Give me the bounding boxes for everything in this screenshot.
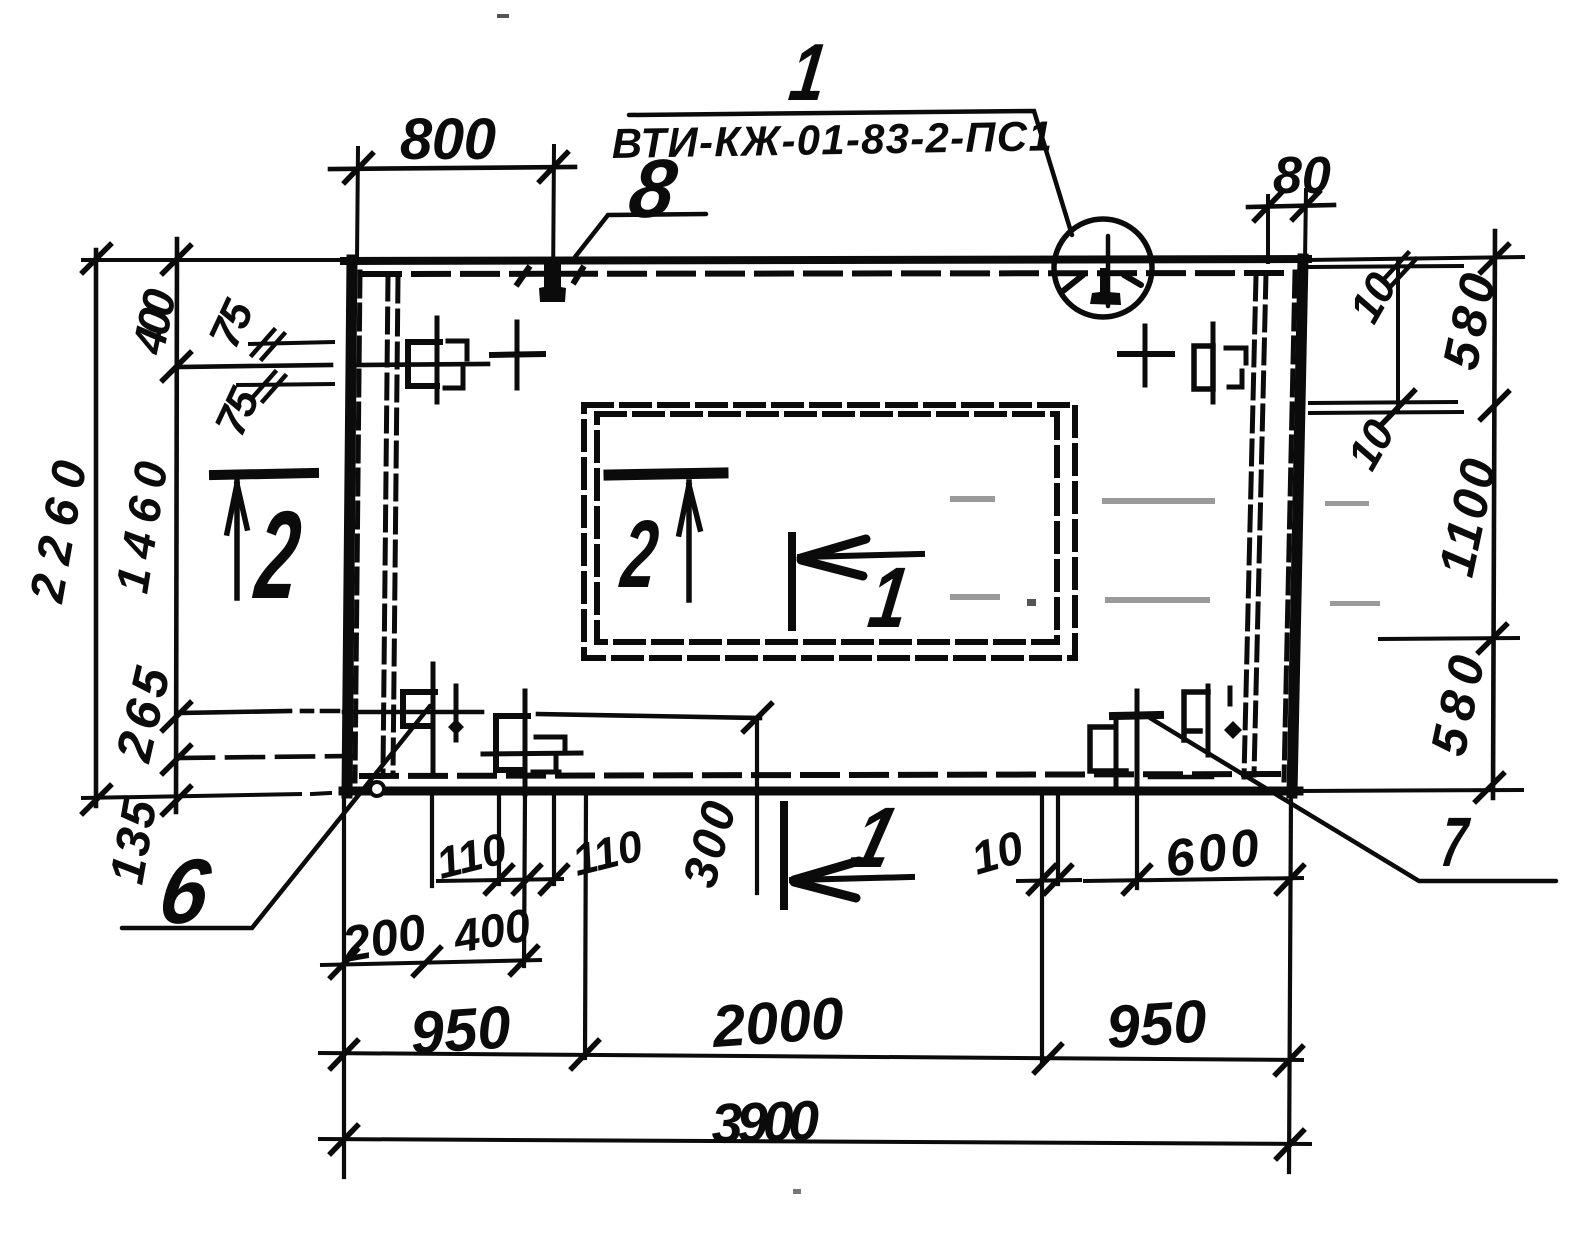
svg-text:10: 10 [965, 820, 1029, 884]
svg-text:580: 580 [1420, 651, 1496, 761]
svg-text:1: 1 [863, 549, 914, 646]
svg-text:950: 950 [1104, 987, 1209, 1061]
svg-text:1: 1 [841, 791, 907, 887]
svg-text:110: 110 [568, 821, 648, 886]
svg-text:2: 2 [615, 502, 663, 608]
svg-text:1: 1 [785, 28, 832, 118]
svg-text:265: 265 [105, 661, 181, 767]
svg-text:2: 2 [249, 484, 307, 624]
svg-text:135: 135 [101, 795, 168, 888]
svg-text:950: 950 [408, 993, 513, 1067]
svg-text:2000: 2000 [709, 985, 846, 1060]
svg-text:80: 80 [1273, 147, 1331, 205]
svg-text:3900: 3900 [710, 1088, 820, 1155]
svg-text:800: 800 [400, 107, 496, 172]
svg-text:10: 10 [1338, 411, 1405, 478]
svg-text:300: 300 [673, 796, 747, 893]
svg-text:2260: 2260 [20, 457, 97, 607]
svg-text:400: 400 [449, 898, 535, 963]
svg-text:1460: 1460 [106, 458, 178, 597]
svg-text:7: 7 [1437, 802, 1473, 881]
